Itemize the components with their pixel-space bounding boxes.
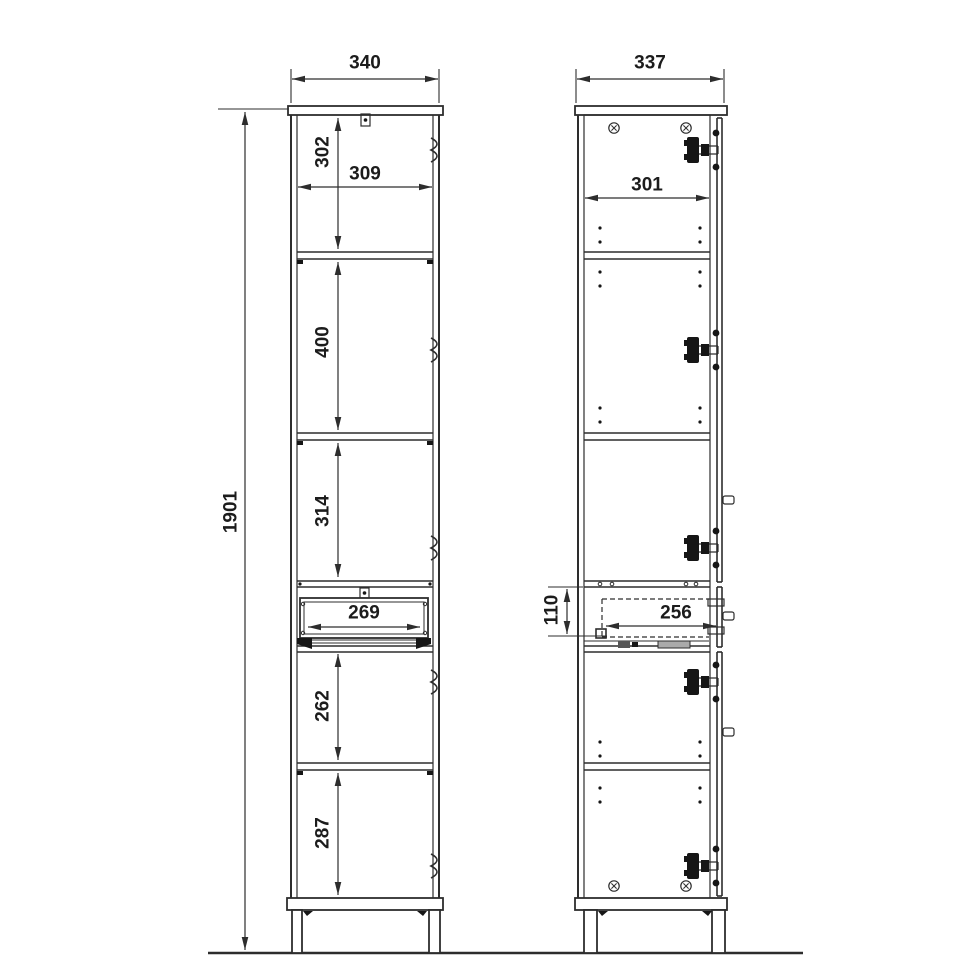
screw-icon [681,123,691,133]
dim-bottom-compartment: 287 [313,773,339,895]
hinge-icon [684,662,719,703]
dim-label-314: 314 [313,495,334,527]
dim-label-110: 110 [542,595,563,626]
hinge-mark-icon [431,138,437,162]
dim-below-drawer-compartment: 262 [313,654,339,760]
side-bottom-panel [575,898,727,910]
side-left-leg [584,910,597,953]
hinge-mark-icon [431,854,437,878]
technical-drawing: 340 1901 302 309 400 314 269 262 [0,0,970,971]
hinge-icon [684,130,719,171]
hinge-icon [684,846,719,887]
knob-icon [723,612,734,620]
hinge-mark-icon [431,338,437,362]
dim-inner-depth: 301 [585,175,709,199]
dim-label-302: 302 [313,136,334,168]
dim-label-262: 262 [313,690,334,722]
dim-label-287: 287 [313,817,334,849]
hinge-mark-icon [431,536,437,560]
dim-label-256: 256 [660,603,692,624]
side-view: 337 301 110 256 [542,53,735,954]
front-left-leg [292,910,302,953]
dim-top-compartment: 302 [313,118,339,249]
screw-icon [609,123,619,133]
side-right-leg [712,910,725,953]
dim-lower-middle-compartment: 314 [313,443,339,577]
dim-overall-depth: 337 [576,53,724,104]
front-bottom-panel [287,898,443,910]
dim-label-301: 301 [631,175,663,196]
dim-overall-width-front: 340 [291,53,439,104]
dim-drawer-inner-depth: 256 [606,603,716,627]
dim-label-269: 269 [348,603,380,624]
front-right-leg [429,910,440,953]
cam-fitting-icon [360,588,369,598]
side-drawer [584,599,724,648]
dim-label-1901: 1901 [221,490,242,533]
dim-label-337: 337 [634,53,666,74]
hinge-icon [684,330,719,371]
hinge-mark-icon [431,670,437,694]
cabinet-dimension-drawing: 340 1901 302 309 400 314 269 262 [0,0,970,971]
dim-label-400: 400 [313,326,334,358]
dim-overall-height: 1901 [218,109,289,950]
side-top-panel [575,106,727,115]
hinge-icon [684,528,719,569]
front-view: 340 1901 302 309 400 314 269 262 [218,53,443,954]
screw-icon [681,881,691,891]
knob-icon [723,728,734,736]
screw-icon [609,881,619,891]
side-door [717,118,722,896]
dim-label-309: 309 [349,164,381,185]
dim-upper-middle-compartment: 400 [313,262,339,430]
shelf-pin-holes [598,226,701,803]
knob-icon [723,496,734,504]
dim-label-340: 340 [349,53,381,74]
